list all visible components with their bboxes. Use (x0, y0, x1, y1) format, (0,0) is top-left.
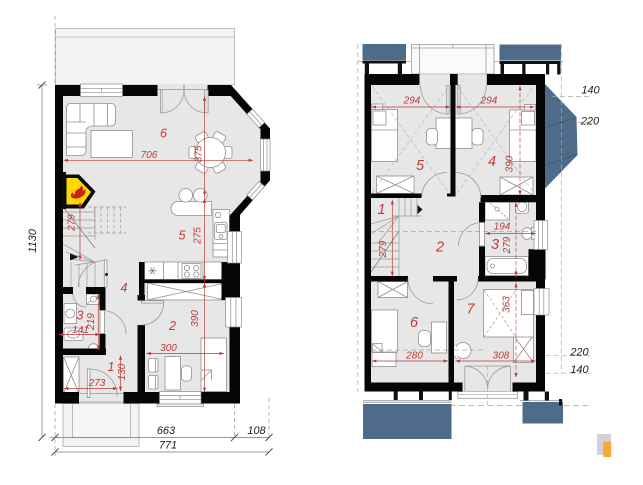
svg-text:279: 279 (378, 240, 389, 258)
svg-text:2: 2 (435, 240, 444, 256)
svg-text:280: 280 (405, 351, 423, 362)
svg-text:294: 294 (480, 96, 498, 107)
svg-text:663: 663 (157, 425, 176, 437)
svg-text:279: 279 (67, 214, 78, 232)
svg-text:5: 5 (416, 158, 425, 174)
svg-text:194: 194 (494, 222, 511, 233)
svg-text:308: 308 (493, 351, 510, 362)
svg-text:130: 130 (117, 363, 128, 380)
svg-text:220: 220 (580, 116, 600, 128)
svg-text:3: 3 (491, 237, 499, 253)
svg-text:7: 7 (466, 302, 475, 318)
svg-text:1130: 1130 (27, 228, 39, 253)
svg-text:706: 706 (141, 150, 158, 161)
svg-text:363: 363 (502, 296, 513, 313)
svg-text:140: 140 (570, 364, 589, 376)
svg-text:4: 4 (488, 154, 496, 170)
svg-text:108: 108 (247, 425, 266, 437)
svg-text:294: 294 (403, 96, 421, 107)
svg-text:375: 375 (194, 145, 205, 162)
svg-text:2: 2 (168, 319, 176, 333)
svg-text:6: 6 (160, 127, 167, 141)
svg-text:279: 279 (502, 236, 513, 254)
svg-text:3: 3 (77, 309, 84, 323)
svg-text:140: 140 (581, 85, 600, 97)
svg-text:390: 390 (505, 155, 516, 172)
svg-text:219: 219 (86, 313, 97, 331)
svg-text:1: 1 (377, 202, 385, 218)
svg-text:6: 6 (410, 315, 419, 331)
svg-text:390: 390 (190, 310, 201, 327)
svg-text:275: 275 (193, 227, 204, 245)
svg-text:1: 1 (108, 360, 115, 374)
svg-text:273: 273 (88, 378, 106, 389)
svg-text:300: 300 (160, 343, 177, 354)
svg-text:5: 5 (179, 229, 186, 243)
svg-text:771: 771 (159, 440, 177, 452)
svg-text:220: 220 (569, 347, 589, 359)
svg-text:4: 4 (121, 281, 128, 295)
